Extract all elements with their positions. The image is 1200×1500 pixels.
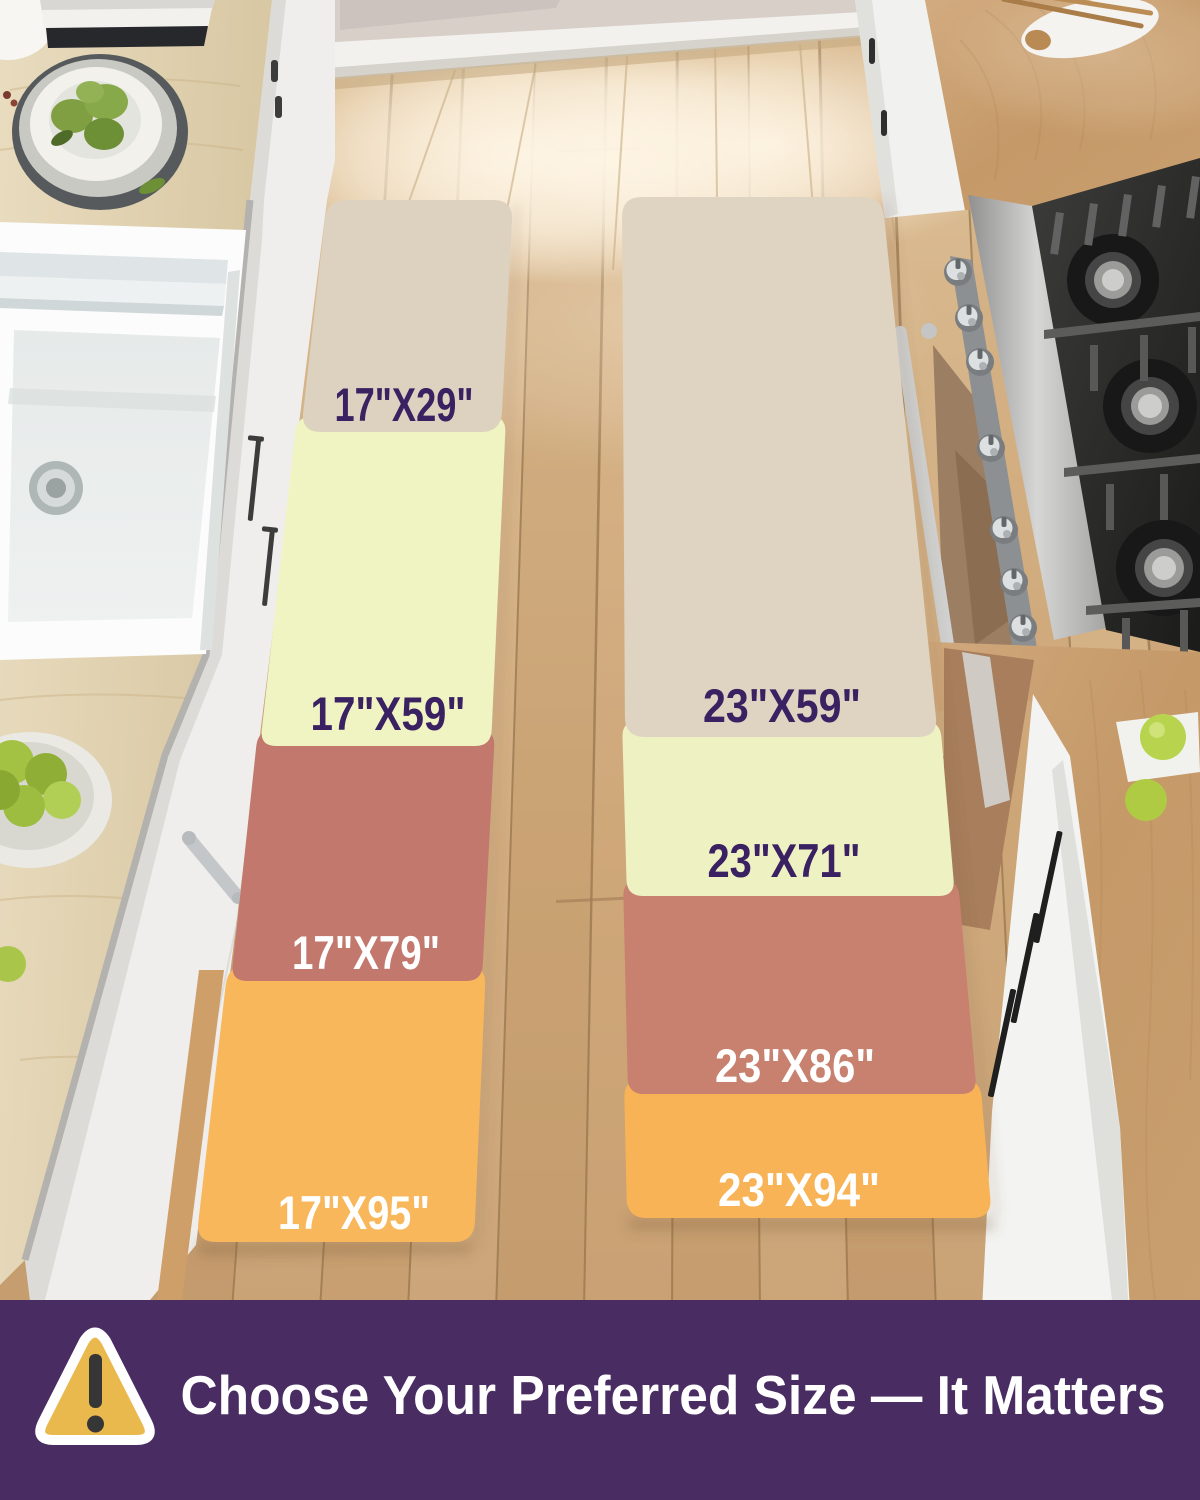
svg-text:23"X71": 23"X71" (708, 834, 861, 887)
svg-text:17"X95": 17"X95" (278, 1186, 430, 1239)
svg-text:17"X59": 17"X59" (311, 687, 466, 740)
svg-text:17"X29": 17"X29" (335, 378, 474, 431)
svg-text:23"X94": 23"X94" (718, 1163, 880, 1216)
svg-text:23"X59": 23"X59" (703, 679, 861, 732)
svg-text:17"X79": 17"X79" (292, 926, 440, 979)
svg-text:Choose Your Preferred Size — I: Choose Your Preferred Size — It Matters (181, 1364, 1166, 1426)
svg-text:23"X86": 23"X86" (715, 1039, 875, 1092)
